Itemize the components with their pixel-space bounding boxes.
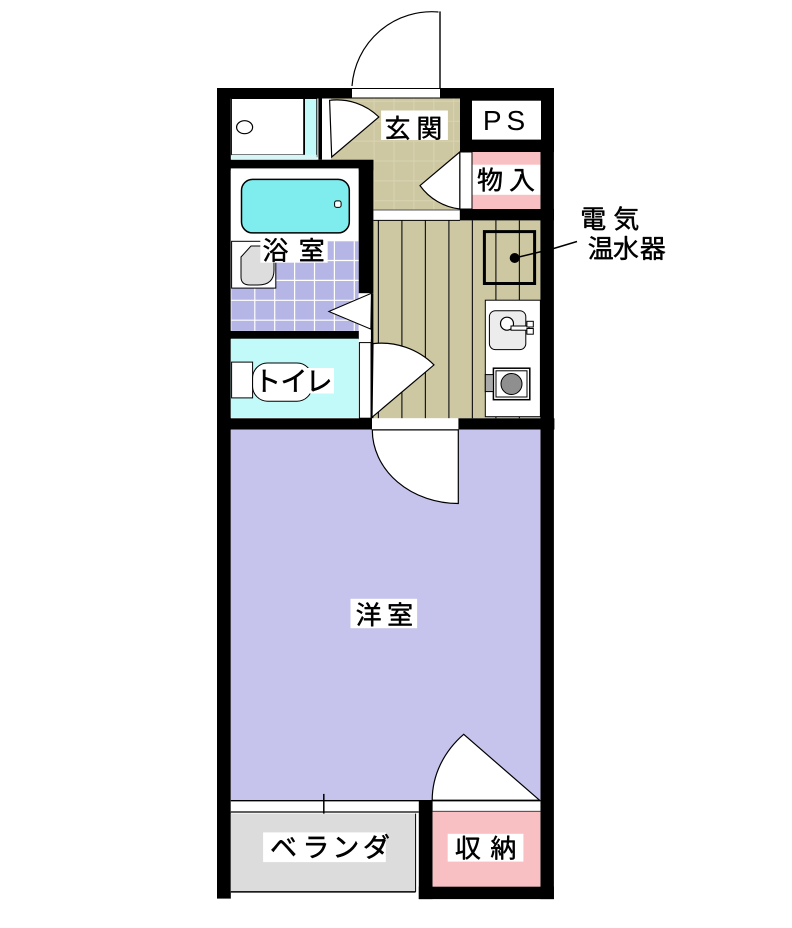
svg-text:PS: PS: [483, 105, 530, 136]
